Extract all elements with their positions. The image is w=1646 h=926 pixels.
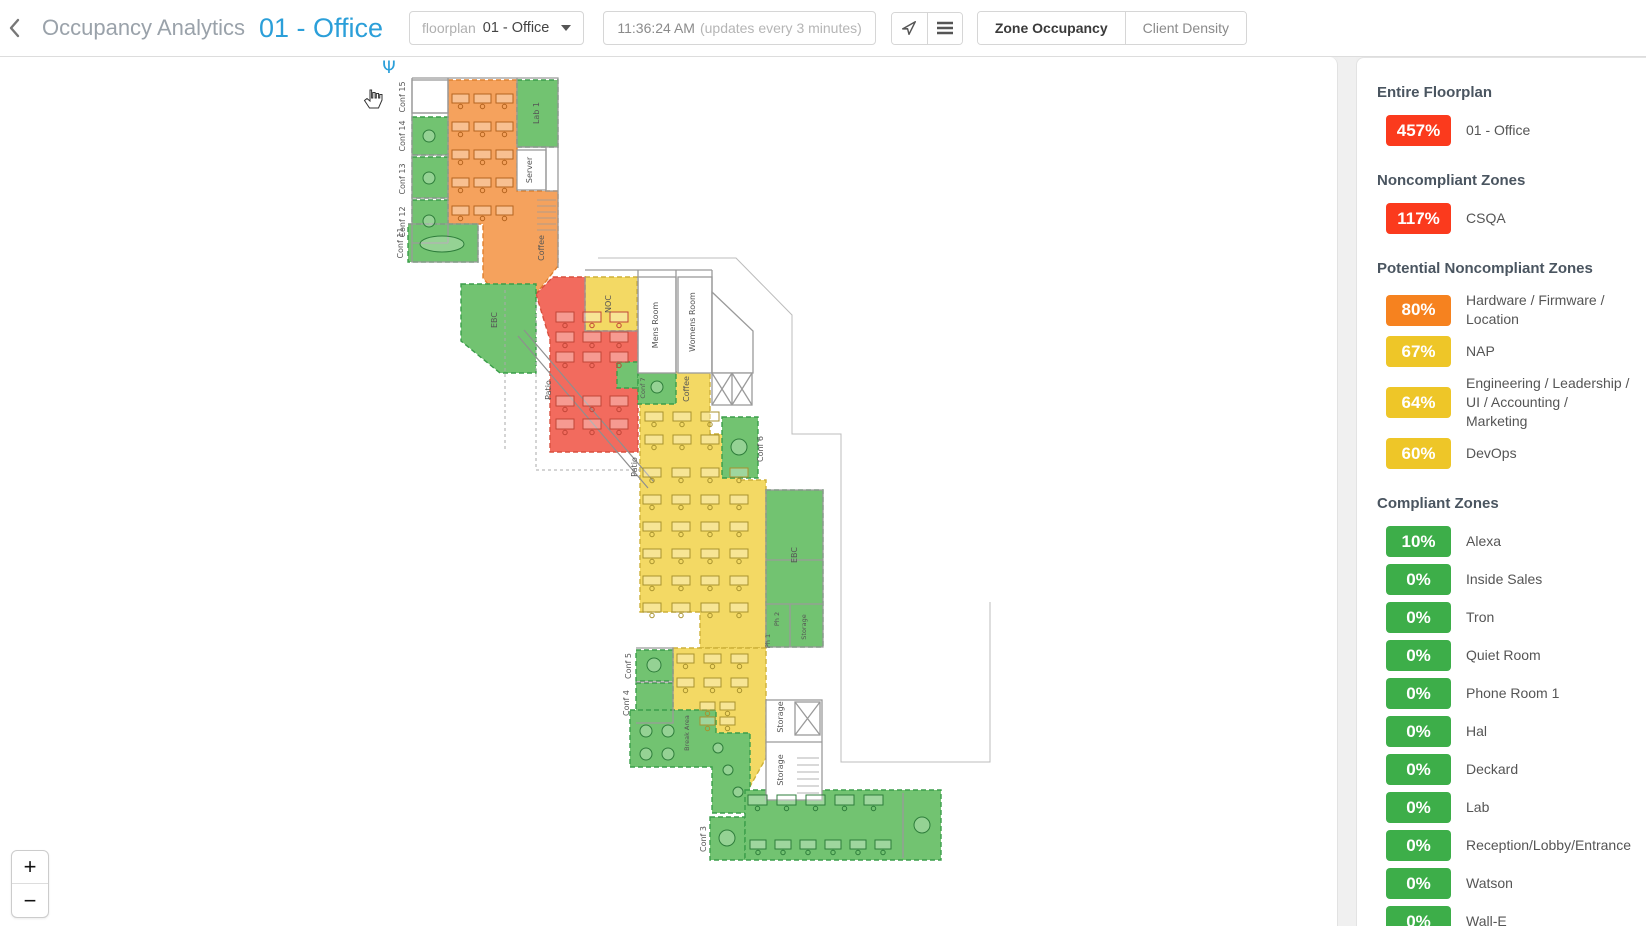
refresh-note: (updates every 3 minutes) bbox=[700, 20, 862, 36]
floorplan-svg: Conf 15 Conf 14 Conf 13 Conf 12 Conf 11 … bbox=[0, 57, 1338, 926]
occupancy-badge: 0% bbox=[1386, 564, 1451, 595]
room-conf-15 bbox=[412, 80, 448, 113]
zone-occupancy-row[interactable]: 0% Watson bbox=[1386, 868, 1632, 899]
room-label-conf4: Conf 4 bbox=[622, 690, 631, 716]
occupancy-badge: 0% bbox=[1386, 868, 1451, 899]
occupancy-badge: 0% bbox=[1386, 678, 1451, 709]
room-label-conf13: Conf 13 bbox=[398, 163, 407, 194]
view-toggle-button[interactable]: Client Density bbox=[1125, 12, 1246, 44]
zone-name: Reception/Lobby/Entrance bbox=[1466, 836, 1631, 855]
menu-button[interactable] bbox=[927, 13, 962, 44]
elevator-shaft-icon bbox=[712, 373, 752, 405]
zone-name: Quiet Room bbox=[1466, 646, 1541, 665]
room-label-conf11: Conf 11 bbox=[396, 227, 405, 258]
zone-name: Deckard bbox=[1466, 760, 1518, 779]
zone-name: Engineering / Leadership / UI / Accounti… bbox=[1466, 374, 1632, 431]
svg-text:Ψ: Ψ bbox=[382, 58, 395, 78]
room-label-storage2: Storage bbox=[776, 754, 785, 785]
chevron-down-icon bbox=[561, 25, 571, 31]
zone-name: DevOps bbox=[1466, 444, 1517, 463]
section-heading: Compliant Zones bbox=[1377, 495, 1632, 512]
zone-occupancy-row[interactable]: 0% Wall-E bbox=[1386, 906, 1632, 926]
refresh-time-display: 11:36:24 AM (updates every 3 minutes) bbox=[603, 11, 875, 45]
occupancy-badge: 0% bbox=[1386, 602, 1451, 633]
conf11-table-icon bbox=[420, 236, 464, 252]
page-title: 01 - Office bbox=[259, 13, 383, 44]
room-label-ebc1: EBC bbox=[490, 312, 499, 328]
room-label-coffee2: Coffee bbox=[682, 376, 691, 402]
zone-name: CSQA bbox=[1466, 209, 1506, 228]
room-label-patio2: Patio bbox=[630, 457, 639, 477]
zone-occupancy-row[interactable]: 0% Quiet Room bbox=[1386, 640, 1632, 671]
room-label-coffee1: Coffee bbox=[537, 235, 546, 261]
zone-name: Phone Room 1 bbox=[1466, 684, 1559, 703]
zone-name: Hal bbox=[1466, 722, 1487, 741]
map-zoom-control: + − bbox=[11, 850, 49, 918]
navigation-arrow-icon bbox=[900, 19, 918, 37]
zone-name: Tron bbox=[1466, 608, 1494, 627]
zone-name: Wall-E bbox=[1466, 912, 1507, 926]
room-label-conf15: Conf 15 bbox=[398, 81, 407, 112]
occupancy-badge: 60% bbox=[1386, 438, 1451, 469]
app-title: Occupancy Analytics bbox=[42, 15, 245, 41]
room-label-ph2: Ph 2 bbox=[773, 612, 781, 626]
occupancy-badge: 457% bbox=[1386, 115, 1451, 146]
view-toggle-button[interactable]: Zone Occupancy bbox=[978, 12, 1125, 44]
section-items: 117% CSQA bbox=[1377, 203, 1632, 234]
zoom-out-button[interactable]: − bbox=[12, 884, 48, 917]
floorplan-select-label: floorplan bbox=[422, 20, 476, 36]
zone-occupancy-row[interactable]: 67% NAP bbox=[1386, 336, 1632, 367]
map-pin-icon[interactable]: Ψ bbox=[382, 58, 395, 78]
section-heading: Noncompliant Zones bbox=[1377, 172, 1632, 189]
zone-name: Inside Sales bbox=[1466, 570, 1542, 589]
occupancy-badge: 0% bbox=[1386, 716, 1451, 747]
vertical-scrollbar[interactable] bbox=[1338, 57, 1356, 926]
zone-occupancy-row[interactable]: 10% Alexa bbox=[1386, 526, 1632, 557]
zone-occupancy-row[interactable]: 0% Reception/Lobby/Entrance bbox=[1386, 830, 1632, 861]
occupancy-badge: 80% bbox=[1386, 295, 1451, 326]
section-items: 457% 01 - Office bbox=[1377, 115, 1632, 146]
room-womens-corner bbox=[712, 292, 753, 373]
sidebar-section: Entire Floorplan 457% 01 - Office bbox=[1377, 84, 1632, 146]
current-time: 11:36:24 AM bbox=[617, 20, 695, 36]
room-label-conf3: Conf 3 bbox=[699, 826, 708, 852]
room-label-storage1: Storage bbox=[776, 701, 785, 732]
zone-occupancy-row[interactable]: 64% Engineering / Leadership / UI / Acco… bbox=[1386, 374, 1632, 431]
sidebar-section: Noncompliant Zones 117% CSQA bbox=[1377, 172, 1632, 234]
occupancy-badge: 0% bbox=[1386, 906, 1451, 926]
view-toggle-group: Zone Occupancy Client Density bbox=[977, 11, 1247, 45]
room-label-noc: NOC bbox=[604, 295, 613, 313]
floorplan-map[interactable]: Conf 15 Conf 14 Conf 13 Conf 12 Conf 11 … bbox=[0, 57, 1338, 926]
content: Conf 15 Conf 14 Conf 13 Conf 12 Conf 11 … bbox=[0, 57, 1646, 926]
zone-occupancy-row[interactable]: 117% CSQA bbox=[1386, 203, 1632, 234]
zone-name: Lab bbox=[1466, 798, 1489, 817]
occupancy-badge: 0% bbox=[1386, 754, 1451, 785]
zone-occupancy-row[interactable]: 60% DevOps bbox=[1386, 438, 1632, 469]
occupancy-badge: 67% bbox=[1386, 336, 1451, 367]
zone-occupancy-row[interactable]: 0% Hal bbox=[1386, 716, 1632, 747]
section-items: 10% Alexa 0% Inside Sales 0% Tron 0% Qui… bbox=[1377, 526, 1632, 926]
zone-name: Watson bbox=[1466, 874, 1513, 893]
occupancy-badge: 64% bbox=[1386, 387, 1451, 418]
zone-name: Hardware / Firmware / Location bbox=[1466, 291, 1632, 329]
floorplan-select[interactable]: floorplan 01 - Office bbox=[409, 11, 584, 45]
sidebar-section: Potential Noncompliant Zones 80% Hardwar… bbox=[1377, 260, 1632, 469]
section-heading: Entire Floorplan bbox=[1377, 84, 1632, 101]
room-label-conf7: Conf 7 bbox=[639, 377, 647, 398]
occupancy-badge: 0% bbox=[1386, 640, 1451, 671]
sidebar-section: Compliant Zones 10% Alexa 0% Inside Sale… bbox=[1377, 495, 1632, 926]
room-label-womens: Womens Room bbox=[688, 292, 697, 352]
header: Occupancy Analytics 01 - Office floorpla… bbox=[0, 0, 1646, 57]
room-label-breakarea: Break Area bbox=[683, 715, 691, 751]
occupancy-badge: 117% bbox=[1386, 203, 1451, 234]
floorplan-select-value: 01 - Office bbox=[483, 20, 550, 36]
room-label-conf6: Conf 6 bbox=[756, 436, 765, 462]
occupancy-badge: 10% bbox=[1386, 526, 1451, 557]
zone-occupancy-row[interactable]: 0% Inside Sales bbox=[1386, 564, 1632, 595]
sidebar-sections: Entire Floorplan 457% 01 - Office Noncom… bbox=[1377, 84, 1632, 926]
hand-cursor-icon bbox=[365, 90, 383, 108]
room-label-lab1: Lab 1 bbox=[532, 102, 541, 124]
room-label-conf5: Conf 5 bbox=[624, 653, 633, 679]
back-chevron-icon[interactable] bbox=[8, 18, 38, 38]
locate-button[interactable] bbox=[892, 13, 927, 44]
occupancy-badge: 0% bbox=[1386, 792, 1451, 823]
room-label-ph1: Ph 1 bbox=[764, 634, 772, 648]
zone-name: 01 - Office bbox=[1466, 121, 1530, 140]
zone-occupancy-row[interactable]: 0% Tron bbox=[1386, 602, 1632, 633]
zone-small-room[interactable] bbox=[617, 362, 638, 388]
room-label-mens: Mens Room bbox=[651, 302, 660, 349]
occupancy-badge: 0% bbox=[1386, 830, 1451, 861]
section-heading: Potential Noncompliant Zones bbox=[1377, 260, 1632, 277]
zone-occupancy-row[interactable]: 80% Hardware / Firmware / Location bbox=[1386, 291, 1632, 329]
room-label-ebc2: EBC bbox=[790, 547, 799, 563]
room-label-conf14: Conf 14 bbox=[398, 120, 407, 151]
zone-name: Alexa bbox=[1466, 532, 1501, 551]
section-items: 80% Hardware / Firmware / Location 67% N… bbox=[1377, 291, 1632, 469]
zone-occupancy-row[interactable]: 457% 01 - Office bbox=[1386, 115, 1632, 146]
hamburger-icon bbox=[936, 20, 954, 36]
zone-name: NAP bbox=[1466, 342, 1495, 361]
room-label-storage3: Storage bbox=[800, 614, 808, 639]
zone-occupancy-row[interactable]: 0% Phone Room 1 bbox=[1386, 678, 1632, 709]
room-label-patio1: Patio bbox=[544, 380, 553, 400]
elevator-shaft-south-icon bbox=[795, 702, 820, 735]
zone-occupancy-row[interactable]: 0% Lab bbox=[1386, 792, 1632, 823]
room-label-server: Server bbox=[525, 156, 534, 183]
zone-occupancy-row[interactable]: 0% Deckard bbox=[1386, 754, 1632, 785]
map-tool-group bbox=[891, 12, 963, 45]
occupancy-sidebar: Entire Floorplan 457% 01 - Office Noncom… bbox=[1356, 57, 1646, 926]
zoom-in-button[interactable]: + bbox=[12, 851, 48, 884]
